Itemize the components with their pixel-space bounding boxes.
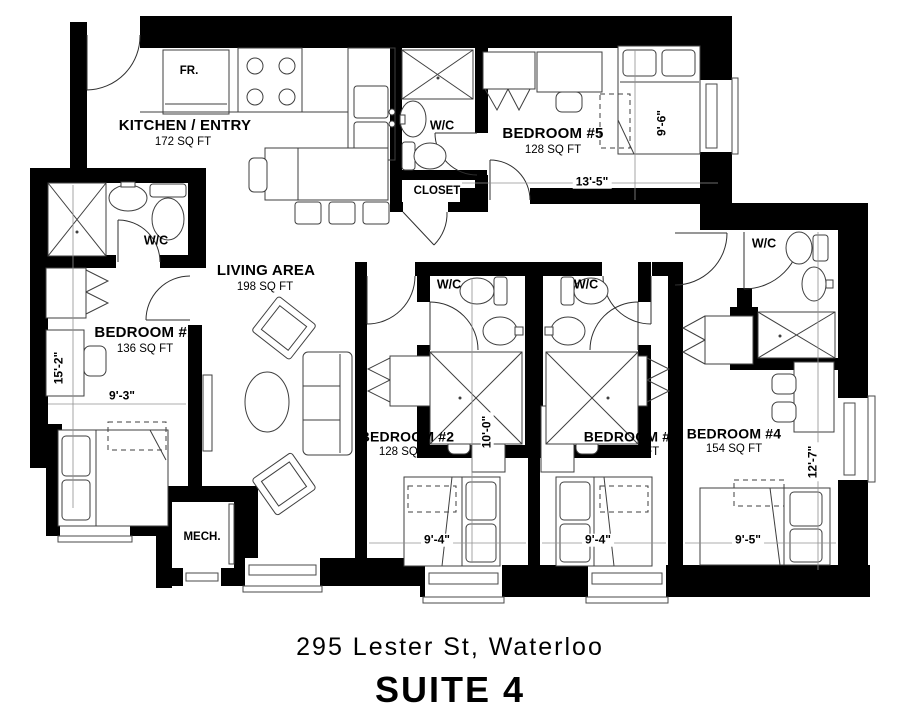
dim-bedroom1-height: 15'-2" — [53, 349, 66, 388]
dim-bedroom4-width: 9'-5" — [732, 534, 764, 547]
living-area-label: 198 SQ FT — [237, 281, 293, 293]
entry-door — [87, 35, 140, 90]
bedroom1-area: 136 SQ FT — [117, 343, 173, 355]
sofa-icon — [303, 352, 352, 455]
wc2-label: W/C — [437, 278, 461, 291]
wc2-door — [430, 302, 478, 350]
fridge-icon — [163, 50, 229, 114]
bed-icon — [404, 477, 500, 566]
bedroom4-label: BEDROOM #4 — [687, 427, 782, 442]
dim-bedroom2-height: 10'-0" — [481, 413, 494, 452]
wardrobe-icon — [368, 356, 437, 406]
wc-mid-label: W/C — [430, 119, 454, 132]
wc3-label: W/C — [574, 278, 598, 291]
window-bedroom2 — [423, 565, 504, 603]
window-bedroom3 — [586, 565, 668, 603]
sink-icon — [109, 182, 147, 211]
bedroom5-area: 128 SQ FT — [525, 144, 581, 156]
shower-icon — [758, 312, 835, 358]
tv-console-icon — [203, 375, 212, 451]
kitchen-label: KITCHEN / ENTRY — [119, 118, 251, 134]
dim-bedroom4-height: 12'-7" — [807, 443, 820, 482]
toilet-icon — [786, 232, 828, 264]
bedroom2-label: BEDROOM #2 — [360, 430, 455, 445]
bedroom2-area: 128 SQ FT — [379, 446, 435, 458]
living-label: LIVING AREA — [217, 263, 315, 279]
bed-icon — [600, 46, 700, 154]
wardrobe-icon — [46, 268, 108, 318]
armchair-icon — [252, 296, 317, 360]
sink-icon — [483, 317, 523, 345]
living-furniture — [203, 296, 352, 516]
bed-icon — [58, 422, 168, 526]
armchair-icon — [252, 452, 317, 516]
fridge-label: FR. — [180, 65, 199, 77]
suite-title: SUITE 4 — [375, 671, 525, 709]
bedroom3-label: BEDROOM #3 — [584, 430, 679, 445]
bedroom2-door — [367, 276, 415, 324]
toilet-icon — [460, 277, 507, 305]
address-title: 295 Lester St, Waterloo — [296, 634, 604, 660]
shower-icon — [402, 50, 473, 99]
desk-icon — [772, 362, 834, 432]
bedroom3-area: 124 SQ FT — [603, 446, 659, 458]
toilet-icon — [402, 142, 446, 170]
window-bedroom5 — [700, 78, 738, 154]
desk-icon — [537, 52, 602, 112]
kitchen-island — [249, 148, 389, 224]
closet-door — [403, 212, 447, 245]
kitchen-area: 172 SQ FT — [155, 136, 211, 148]
bedroom5-door — [490, 160, 530, 200]
wc4-fixtures — [758, 232, 835, 358]
window-bedroom4 — [838, 396, 875, 482]
wc3-fixtures — [545, 277, 638, 444]
coffee-table-icon — [245, 372, 289, 432]
sink-icon — [802, 267, 833, 301]
bed-icon — [700, 480, 830, 565]
floor-plan-drawing — [0, 0, 900, 715]
toilet-icon — [150, 184, 186, 240]
window-living — [243, 558, 322, 592]
dim-bedroom3-width: 9'-4" — [582, 534, 614, 547]
wardrobe-icon — [683, 316, 753, 364]
bedroom1-label: BEDROOM #1 — [94, 325, 195, 341]
wardrobe-icon — [483, 52, 535, 110]
dim-bedroom5-height: 9'-6" — [656, 107, 669, 139]
sink-icon — [545, 317, 585, 345]
wc-mid-fixtures — [400, 50, 473, 170]
mech-label: MECH. — [183, 531, 220, 543]
wc1-label: W/C — [144, 234, 168, 247]
closet-label: CLOSET — [414, 185, 461, 197]
bedroom1-door — [146, 276, 190, 320]
wc2-fixtures — [430, 277, 523, 444]
stove-icon — [238, 48, 302, 112]
kitchen-sink-icon — [348, 48, 395, 160]
sink-icon — [400, 101, 426, 137]
bedroom4-area: 154 SQ FT — [706, 443, 762, 455]
dim-bedroom1-width: 9'-3" — [106, 390, 138, 403]
dim-bedroom2-width: 9'-4" — [421, 534, 453, 547]
floor-plan: FR. KITCHEN / ENTRY 172 SQ FT W/C W/C CL… — [0, 0, 900, 715]
wc4-label: W/C — [752, 237, 776, 250]
wc3-door — [590, 302, 638, 350]
bedroom5-label: BEDROOM #5 — [502, 126, 603, 142]
shower-icon — [48, 183, 106, 256]
window-mech — [183, 568, 221, 590]
dim-bedroom5-width: 13'-5" — [573, 176, 612, 189]
bed-icon — [556, 477, 652, 566]
